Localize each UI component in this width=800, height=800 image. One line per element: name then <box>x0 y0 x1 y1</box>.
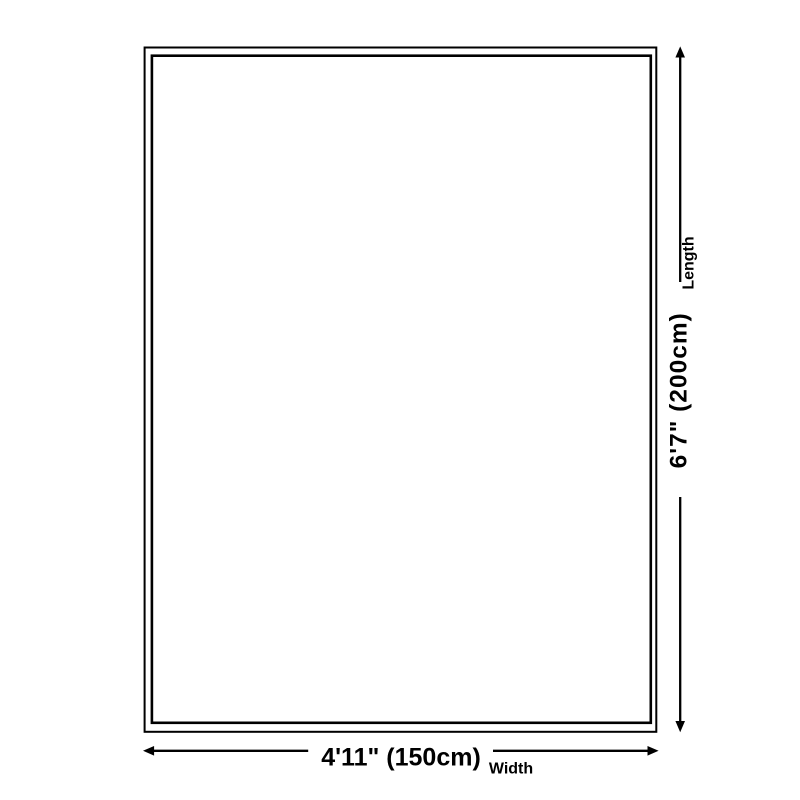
svg-text:Width: Width <box>489 761 533 778</box>
svg-text:4'11" (150cm): 4'11" (150cm) <box>321 743 481 771</box>
svg-text:Length: Length <box>680 236 697 289</box>
svg-text:6'7" (200cm): 6'7" (200cm) <box>665 312 692 468</box>
